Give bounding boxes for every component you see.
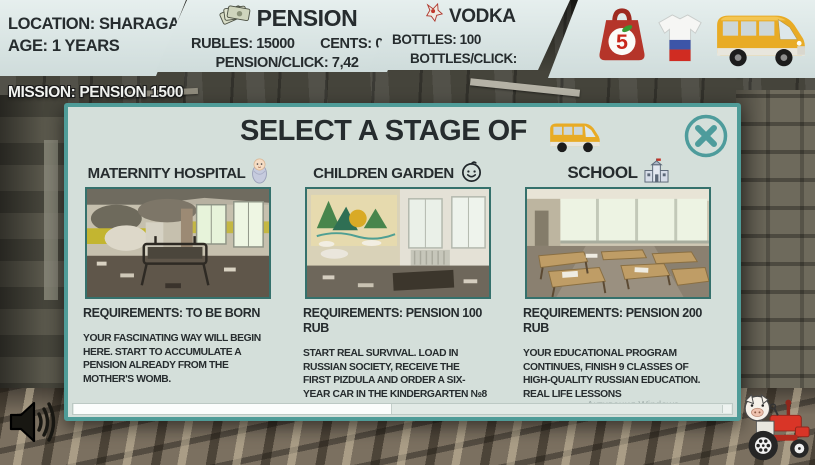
dialog-title: SELECT A STAGE OF	[240, 115, 527, 148]
background-stone-wall	[736, 90, 815, 402]
game-screen: LOCATION: SHARAGA AGE: 1 YEARS PENSION	[0, 0, 815, 465]
pyaterochka-shop-button[interactable]: 5	[596, 7, 648, 63]
age-label: AGE: 1 YEARS	[8, 35, 180, 57]
location-panel: LOCATION: SHARAGA AGE: 1 YEARS	[0, 0, 186, 76]
stage-requirements: REQUIREMENTS: PENSION 100 RUB	[303, 306, 493, 336]
pension-per-click: PENSION/CLICK: 7,42	[215, 54, 358, 73]
shop-panel: 5	[548, 0, 815, 78]
bottles-value: BOTTLES: 100	[392, 30, 560, 49]
stage-requirements: REQUIREMENTS: PENSION 200 RUB	[523, 306, 713, 336]
stage-description: START REAL SURVIVAL. LOAD IN RUSSIAN SOC…	[303, 347, 487, 401]
vodka-panel: VODKA BOTTLES: 100 BOTTLES/CLICK: 264210	[368, 0, 570, 70]
dialog-scrollbar-end	[722, 405, 731, 413]
pyaterochka-number: 5	[616, 30, 628, 54]
pig-tractor-icon	[731, 453, 815, 465]
van-shop-button[interactable]	[712, 8, 810, 72]
cents-value: CENTS: 0	[320, 34, 383, 54]
abandoned-maternity-ward-photo[interactable]	[85, 187, 271, 299]
location-age-text: LOCATION: SHARAGA AGE: 1 YEARS	[8, 13, 180, 57]
abandoned-kindergarten-photo[interactable]	[305, 187, 491, 299]
school-building-icon	[644, 158, 669, 188]
rubles-value: RUBLES: 15000	[191, 34, 295, 54]
stage-name: CHILDREN GARDEN	[313, 165, 454, 182]
stage-name: MATERNITY HOSPITAL	[88, 165, 246, 182]
pension-title: PENSION	[257, 5, 358, 31]
dialog-scrollbar-thumb[interactable]	[74, 404, 392, 414]
vodka-cap-icon	[424, 2, 444, 30]
background-pillar	[44, 140, 58, 300]
baby-face-icon	[460, 160, 483, 187]
money-fan-icon	[217, 2, 253, 34]
pyaterochka-bag-icon: 5	[596, 51, 648, 66]
stage-card-children-garden[interactable]: CHILDREN GARDEN	[303, 159, 493, 401]
stage-card-maternity-hospital[interactable]: MATERNITY HOSPITAL	[83, 159, 273, 386]
stage-name: SCHOOL	[567, 163, 637, 183]
speaker-icon	[6, 438, 60, 453]
clothes-shop-button[interactable]	[656, 11, 704, 65]
dialog-scrollbar-track[interactable]	[72, 403, 733, 415]
russia-flag-shirt-icon	[656, 53, 704, 68]
stage-description: YOUR FASCINATING WAY WILL BEGIN HERE. ST…	[83, 332, 267, 386]
pig-tractor-button[interactable]	[731, 391, 815, 465]
stage-requirements: REQUIREMENTS: TO BE BORN	[83, 306, 260, 321]
abandoned-classroom-photo[interactable]	[525, 187, 711, 299]
close-button[interactable]	[683, 113, 729, 159]
mission-label: MISSION: PENSION 1500	[8, 84, 183, 102]
gazelle-van-icon	[548, 119, 602, 160]
swaddled-baby-icon	[251, 158, 268, 188]
stage-card-school[interactable]: SCHOOL	[523, 159, 713, 401]
gazelle-van-icon	[713, 59, 809, 74]
stage-select-dialog: SELECT A STAGE OF MAT	[64, 103, 741, 421]
stage-description: YOUR EDUCATIONAL PROGRAM CONTINUES, FINI…	[523, 347, 707, 401]
sound-toggle-button[interactable]	[6, 394, 60, 452]
location-label: LOCATION: SHARAGA	[8, 13, 180, 35]
vodka-title: VODKA	[449, 5, 516, 28]
